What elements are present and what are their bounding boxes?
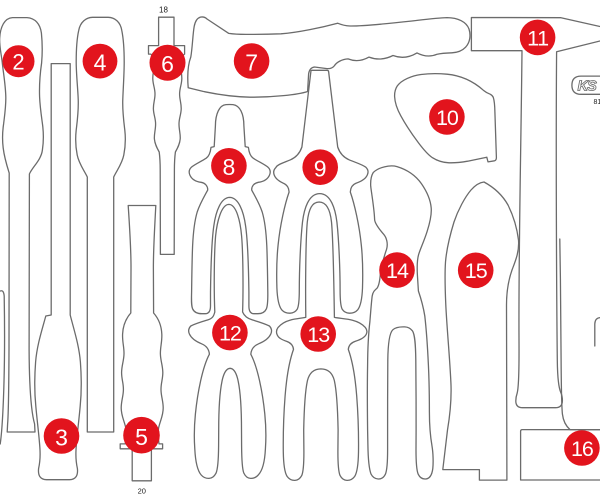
svg-text:13: 13 xyxy=(307,323,330,347)
svg-text:18: 18 xyxy=(159,5,168,14)
svg-text:12: 12 xyxy=(219,322,241,346)
svg-text:4: 4 xyxy=(94,50,107,76)
svg-text:KS: KS xyxy=(578,79,598,95)
svg-text:15: 15 xyxy=(465,259,488,283)
svg-text:2: 2 xyxy=(12,50,24,75)
svg-text:8: 8 xyxy=(223,154,236,180)
svg-text:9: 9 xyxy=(314,156,327,182)
svg-text:20: 20 xyxy=(138,486,146,495)
svg-text:16: 16 xyxy=(571,437,594,461)
svg-text:14: 14 xyxy=(386,259,409,283)
svg-text:11: 11 xyxy=(527,27,549,51)
svg-text:815.10: 815.10 xyxy=(594,99,600,106)
svg-text:10: 10 xyxy=(436,106,459,130)
svg-text:5: 5 xyxy=(135,424,148,450)
svg-text:6: 6 xyxy=(161,51,174,77)
svg-text:7: 7 xyxy=(245,49,258,75)
svg-text:3: 3 xyxy=(55,424,68,450)
